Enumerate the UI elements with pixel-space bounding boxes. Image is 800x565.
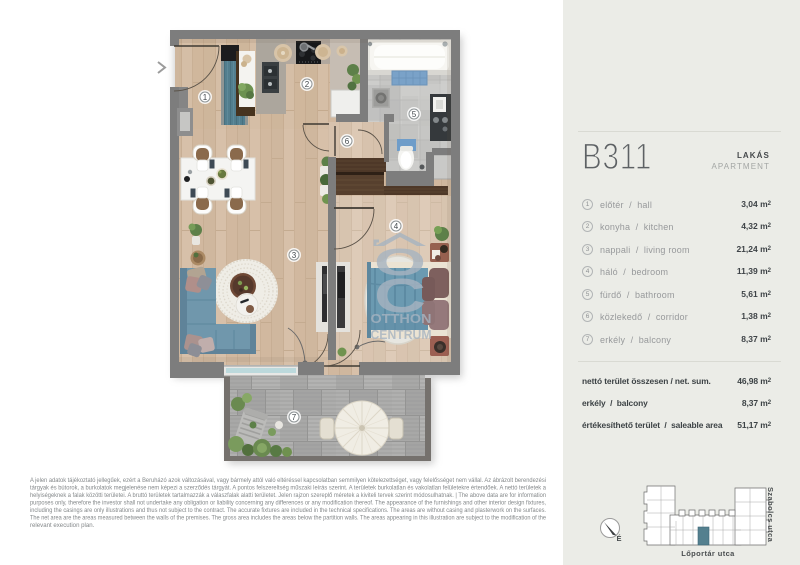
svg-text:OTTHON: OTTHON [371, 312, 432, 326]
svg-text:including the casings are only: including the casings are only illustrat… [30, 507, 546, 514]
svg-text:A jelen adatok tájékoztató jel: A jelen adatok tájékoztató jellegűek, ez… [30, 477, 546, 484]
svg-text:6: 6 [345, 137, 350, 146]
svg-text:5: 5 [412, 110, 417, 119]
svg-text:2: 2 [305, 80, 310, 89]
svg-text:purposes only, therefore the i: purposes only, therefore the investor sh… [30, 500, 546, 507]
svg-text:1: 1 [203, 93, 208, 102]
svg-text:helyiségeknek a falak közötti: helyiségeknek a falak közötti területei.… [30, 492, 546, 499]
svg-text:7: 7 [292, 413, 297, 422]
svg-text:relevant execution plan.: relevant execution plan. [30, 522, 95, 529]
svg-text:4: 4 [394, 222, 399, 231]
svg-text:É: É [617, 534, 622, 543]
svg-text:CENTRUM: CENTRUM [371, 328, 432, 342]
svg-text:3: 3 [292, 251, 297, 260]
svg-text:tárgyak és bútorok, a burkolat: tárgyak és bútorok, a burkolatok megjele… [30, 484, 547, 491]
svg-text:The net area are the areas mea: The net area are the areas measured betw… [30, 515, 547, 522]
